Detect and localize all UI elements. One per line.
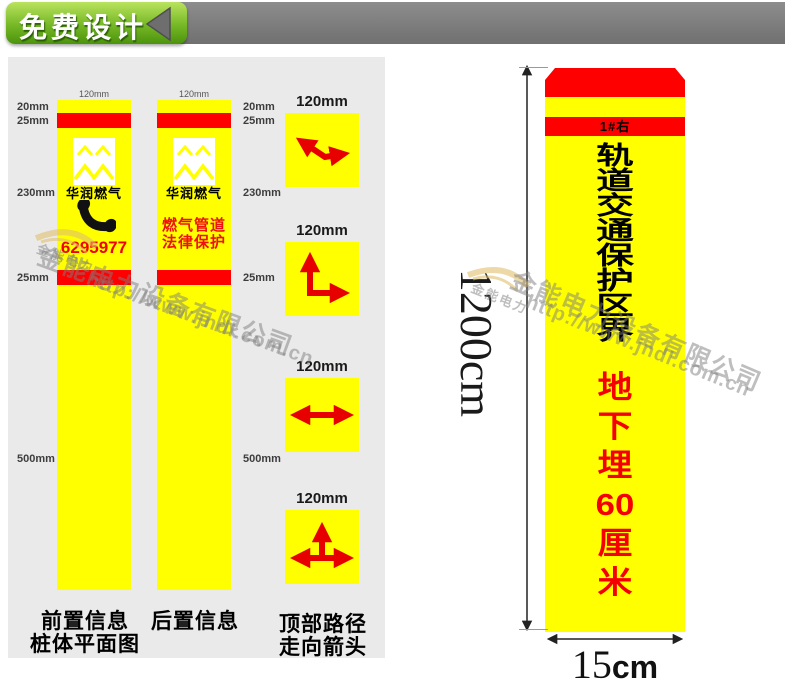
dim-label: 25mm <box>17 272 49 284</box>
top-banner: 免费设计 <box>0 2 785 44</box>
number-plate: 1#右 <box>545 117 685 136</box>
vertical-char: 交 <box>510 194 720 219</box>
caption-arrows: 顶部路径 走向箭头 <box>262 613 384 659</box>
dim-tick <box>519 67 548 68</box>
vertical-char: 米 <box>537 563 694 602</box>
red-band <box>157 270 231 285</box>
brand-name: 华润燃气 <box>157 183 231 202</box>
caption-back-post: 后置信息 <box>134 610 256 633</box>
back-post-diagram: 华润燃气 燃气管道 法律保护 <box>157 100 231 590</box>
vertical-char: 保 <box>510 244 720 269</box>
route-arrow-tee-icon <box>285 510 359 584</box>
caption-line: 顶部路径 <box>262 613 384 636</box>
width-value: 15 <box>572 642 612 684</box>
dim-label: 20mm <box>17 101 49 113</box>
marker-title: 轨道交通保护区界 <box>545 144 685 344</box>
rail-marker-post: 1#右 轨道交通保护区界 地下埋60厘米 <box>545 68 685 632</box>
vertical-char: 道 <box>510 169 720 194</box>
route-arrow-turn-icon <box>285 113 359 187</box>
dim-label: 25mm <box>243 272 275 284</box>
route-arrow-corner-icon <box>285 242 359 316</box>
square-width-label: 120mm <box>285 358 359 375</box>
caption-line: 走向箭头 <box>262 636 384 659</box>
route-arrow-square <box>285 378 359 452</box>
vertical-char: 轨 <box>510 144 720 169</box>
vertical-char: 区 <box>510 294 720 319</box>
vertical-char: 地 <box>537 368 694 407</box>
chevron-left-icon <box>141 6 173 42</box>
vertical-char: 60 <box>537 485 694 524</box>
dim-label: 20mm <box>243 101 275 113</box>
banner-gray-bar <box>118 2 785 44</box>
square-width-label: 120mm <box>285 93 359 110</box>
square-width-label: 120mm <box>285 490 359 507</box>
free-design-label: 免费设计 <box>19 6 147 46</box>
cr-gas-logo-icon <box>173 138 215 185</box>
dim-label: 500mm <box>243 453 281 465</box>
height-dimension-line <box>519 62 535 637</box>
vertical-char: 厘 <box>537 524 694 563</box>
square-width-label: 120mm <box>285 222 359 239</box>
route-arrow-square <box>285 242 359 316</box>
vertical-char: 埋 <box>537 446 694 485</box>
route-arrow-straight-icon <box>285 378 359 452</box>
red-band <box>57 113 131 128</box>
post-width-label: 120mm <box>57 89 131 99</box>
marker-post-design-proof: 免费设计 20mm 25mm 230mm 25mm 500mm 20mm 25m… <box>0 0 785 684</box>
vertical-char: 护 <box>510 269 720 294</box>
dim-label: 25mm <box>243 115 275 127</box>
caption-line: 后置信息 <box>134 610 256 633</box>
post-width-label: 120mm <box>157 89 231 99</box>
red-cap <box>545 68 685 97</box>
cr-gas-logo-icon <box>73 138 115 185</box>
protection-slogan: 燃气管道 法律保护 <box>157 217 231 251</box>
front-post-diagram: 华润燃气 6295977 <box>57 100 131 590</box>
width-unit: cm <box>612 649 658 684</box>
width-dimension-label: 15cm <box>535 641 695 684</box>
dim-label: 25mm <box>17 115 49 127</box>
vertical-char: 通 <box>510 219 720 244</box>
red-band <box>57 270 131 285</box>
marker-subtitle: 地下埋60厘米 <box>545 368 685 602</box>
route-arrow-square <box>285 113 359 187</box>
slogan-line: 法律保护 <box>157 234 231 251</box>
dim-label: 230mm <box>17 187 55 199</box>
caption-line: 前置信息 <box>24 610 146 633</box>
red-band <box>157 113 231 128</box>
dim-label: 500mm <box>17 453 55 465</box>
dim-label: 230mm <box>243 187 281 199</box>
slogan-line: 燃气管道 <box>157 217 231 234</box>
caption-line: 桩体平面图 <box>24 633 146 656</box>
route-arrow-square <box>285 510 359 584</box>
caption-front-post: 前置信息 桩体平面图 <box>24 610 146 656</box>
vertical-char: 下 <box>537 407 694 446</box>
marker-body: 轨道交通保护区界 地下埋60厘米 <box>545 136 685 632</box>
vertical-char: 界 <box>510 319 720 344</box>
yellow-band <box>545 97 685 117</box>
dim-tick <box>519 629 548 630</box>
